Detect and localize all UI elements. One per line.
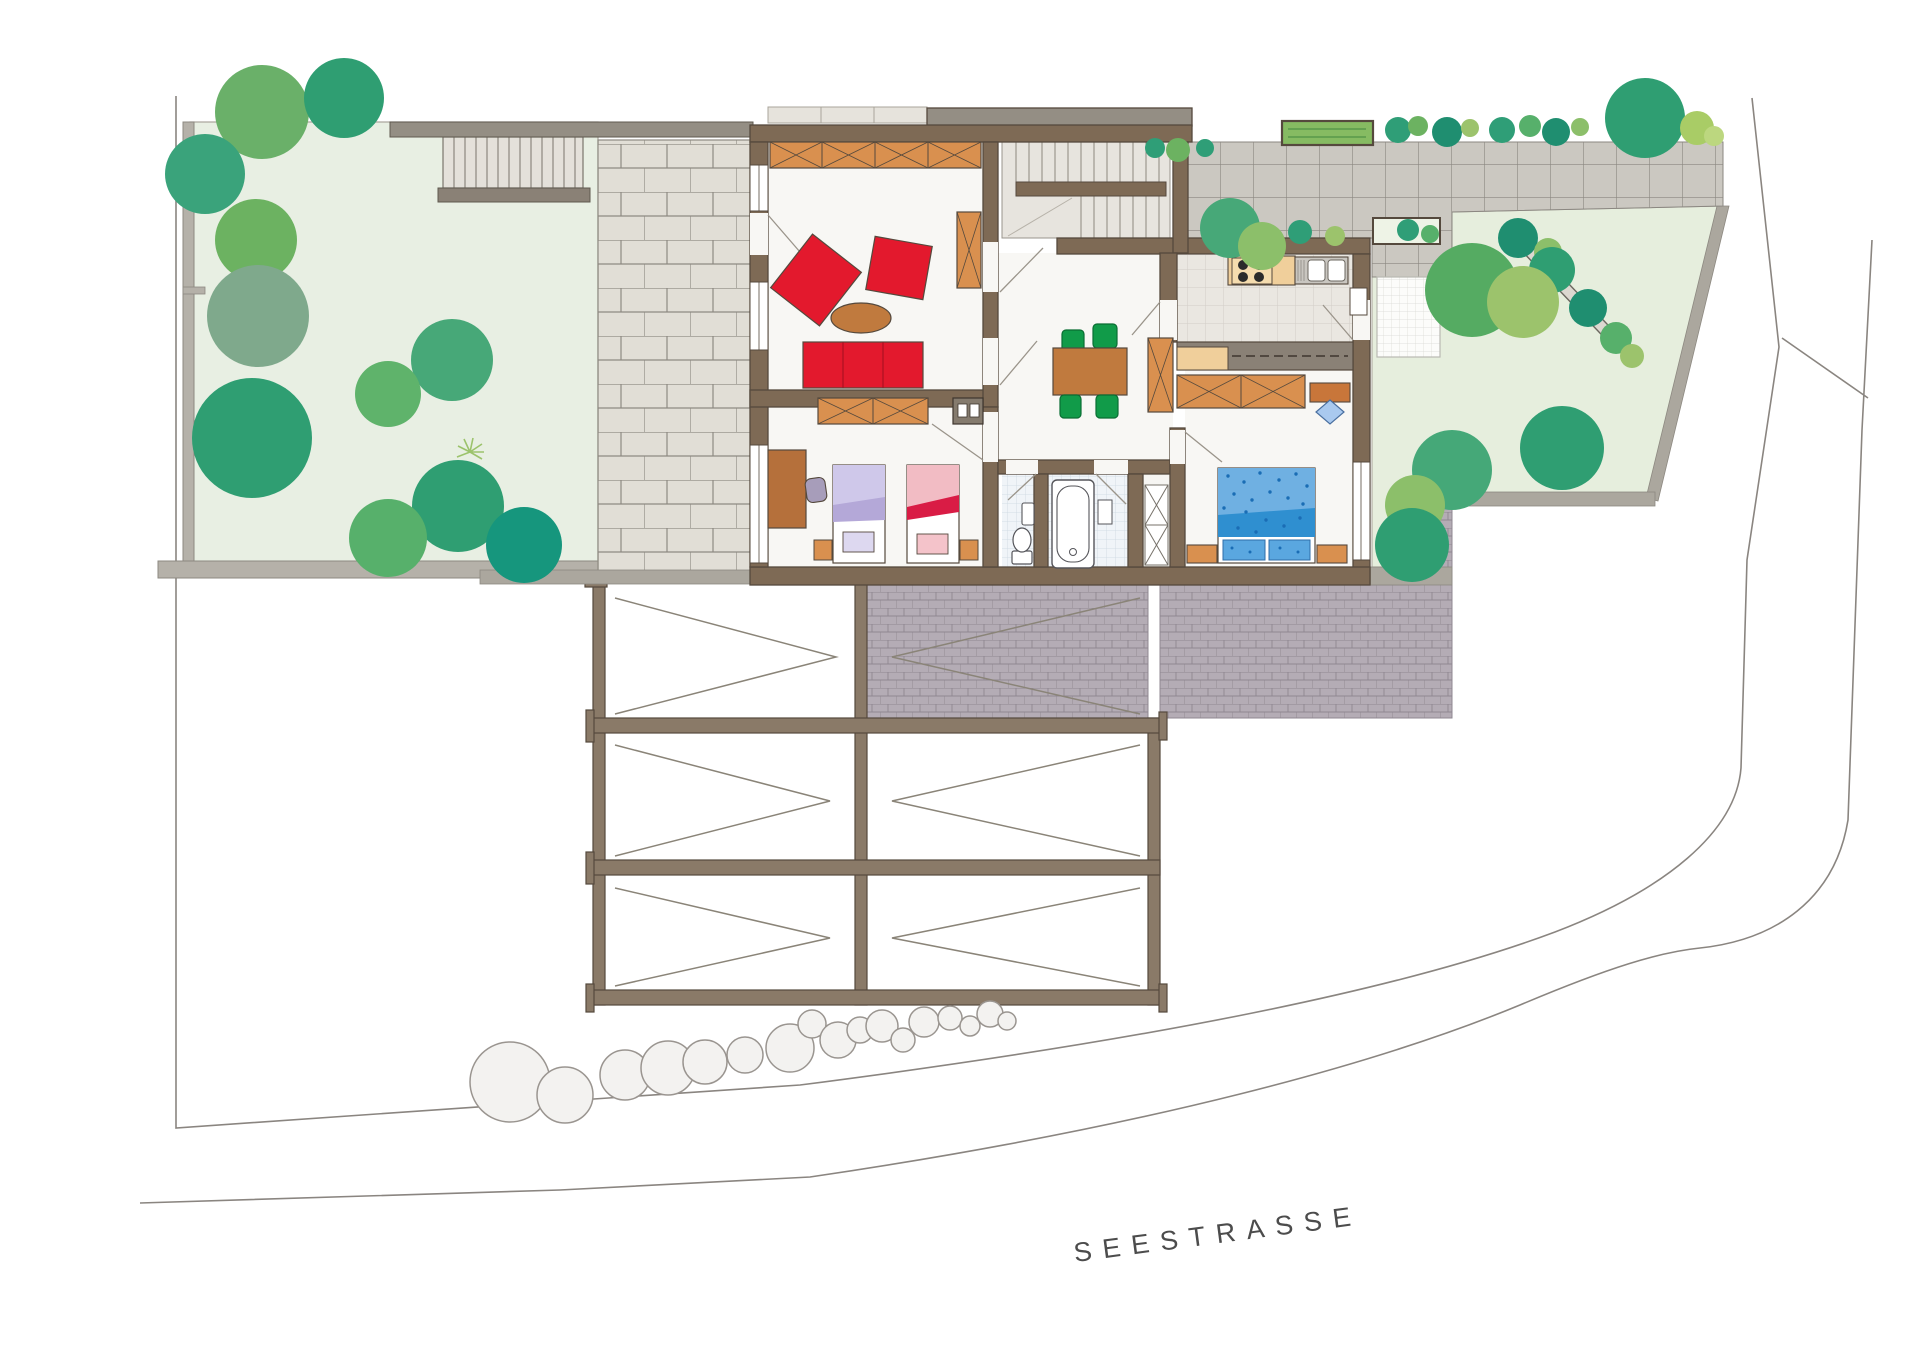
shrub [1145,138,1165,158]
dining-table [1053,348,1127,395]
bush-outline [960,1016,980,1036]
bush-outline [891,1028,915,1052]
tree [349,499,427,577]
garage-roof-hatch [867,585,1148,718]
bay-mark-right-2 [892,745,1140,856]
site-plan-drawing: SEESTRASSE [0,0,1920,1368]
hedge-planter-north [1282,121,1373,145]
shrub [1571,118,1589,136]
brick-path [598,140,753,578]
shrub [1498,218,1538,258]
shrub [1385,117,1411,143]
shrub [1196,139,1214,157]
bed-lilac-pillow [843,532,874,552]
bay-mark-left-3 [615,888,830,986]
dining-furniture [1053,324,1173,418]
parking-wall-row2 [593,860,1160,875]
sink-basin-2 [1328,260,1345,281]
shrub [1166,138,1190,162]
bush-outline [909,1007,939,1037]
window-master [1353,462,1370,560]
shrub [1542,118,1570,146]
street-label: SEESTRASSE [1072,1200,1363,1268]
shrub [1421,225,1439,243]
shrub [1519,115,1541,137]
bush-outline [998,1012,1016,1030]
bush-outline [683,1040,727,1084]
closet-shelf [1145,485,1168,565]
shrub [1489,117,1515,143]
dining-chair-2 [1093,324,1117,348]
wall-endcap-5 [1159,712,1167,740]
shrub [1569,289,1607,327]
north-paver-strip [768,107,927,123]
bed-bench-left [1187,545,1217,563]
coffee-table [831,303,891,333]
wardrobe-north [770,142,981,168]
left-garden-wall-jog [183,287,205,294]
tv-unit [953,398,983,424]
bush-outline [938,1006,962,1030]
bush-outline [727,1037,763,1073]
tree [355,361,421,427]
bathtub [1052,480,1094,568]
shrub [1432,117,1462,147]
wall-endcap-2 [586,710,594,742]
boundary-branch-line [1782,338,1868,398]
tree [1520,406,1604,490]
tree [165,134,245,214]
wall-endcap-4 [586,984,594,1012]
wall-south [750,567,1370,585]
wall-bath-east [1128,474,1143,567]
site-plan-page: SEESTRASSE [0,0,1920,1368]
bay-mark-left-2 [615,745,830,856]
bay-mark-right-3 [892,888,1140,986]
double-bed-blue [1218,468,1315,563]
shrub [1461,119,1479,137]
sideboard-kids [818,398,928,424]
bed-pillow-blue-2 [1269,540,1310,560]
sideboard-master [1177,375,1305,408]
wc-washbasin [1022,503,1034,525]
shrub [1704,126,1724,146]
fridge [1350,288,1367,315]
tree [192,378,312,498]
cabinet-living-east [957,212,981,288]
wall-wc-divider [1034,474,1048,567]
wall-north [750,125,1192,142]
burner-3 [1238,272,1248,282]
entry-door-gap [983,242,998,292]
armchair-red-2 [866,236,932,299]
bed-bench-right [1317,545,1347,563]
island-counter-beige [1177,347,1228,370]
wall-top-outer [927,108,1192,126]
tree [207,265,309,367]
parking-wall-west [593,583,605,1005]
kids-door-gap [983,412,998,462]
living-hall-door-gap [983,338,998,385]
parking-wall-south [593,990,1160,1005]
parking-wall-row1 [593,718,1160,733]
burner-4 [1254,272,1264,282]
shrub [1408,116,1428,136]
tree [411,319,493,401]
tree [1605,78,1685,158]
sink-basin-1 [1308,260,1325,281]
parking-wall-middle [855,583,867,1005]
cabinet-dining [1148,338,1173,412]
bath-cabinet [1098,500,1112,524]
living-west-door-gap [750,213,768,255]
street-bushes [470,1001,1016,1123]
tree [1375,508,1449,582]
bush-outline [537,1067,593,1123]
bed-pink-pillow [917,534,948,554]
exterior-stair-treads [443,137,583,188]
sofa-red [803,342,923,388]
nightstand-left [814,540,832,560]
bed-pink [907,465,959,563]
master-door-gap [1170,430,1185,464]
dining-chair-3 [1060,395,1081,418]
wc-door-gap [1006,460,1038,474]
nightstand-right [960,540,978,560]
tree [1487,266,1559,338]
bath-door-gap [1094,460,1128,474]
bay-mark-left-1 [615,598,836,714]
site-wall-top-band [390,122,753,137]
tree [486,507,562,583]
shrub [1288,220,1312,244]
tree [304,58,384,138]
desk-master [1310,383,1350,402]
exterior-stair-wall-south [438,188,590,202]
wall-endcap-6 [1159,984,1167,1012]
shrub [1620,344,1644,368]
interior-stair [1002,142,1170,238]
bush-outline [470,1042,550,1122]
toilet [1012,528,1032,564]
tree [1238,222,1286,270]
desk-kids [768,450,806,528]
bed-lilac [833,465,885,563]
wall-endcap-3 [586,852,594,884]
bed-pillow-blue-1 [1223,540,1265,560]
stair-handrail [1016,182,1166,196]
kitchen-door-gap [1160,300,1177,340]
shrub [1325,226,1345,246]
chair-kids [804,477,827,504]
dining-chair-4 [1096,395,1118,418]
shrub [1397,219,1419,241]
